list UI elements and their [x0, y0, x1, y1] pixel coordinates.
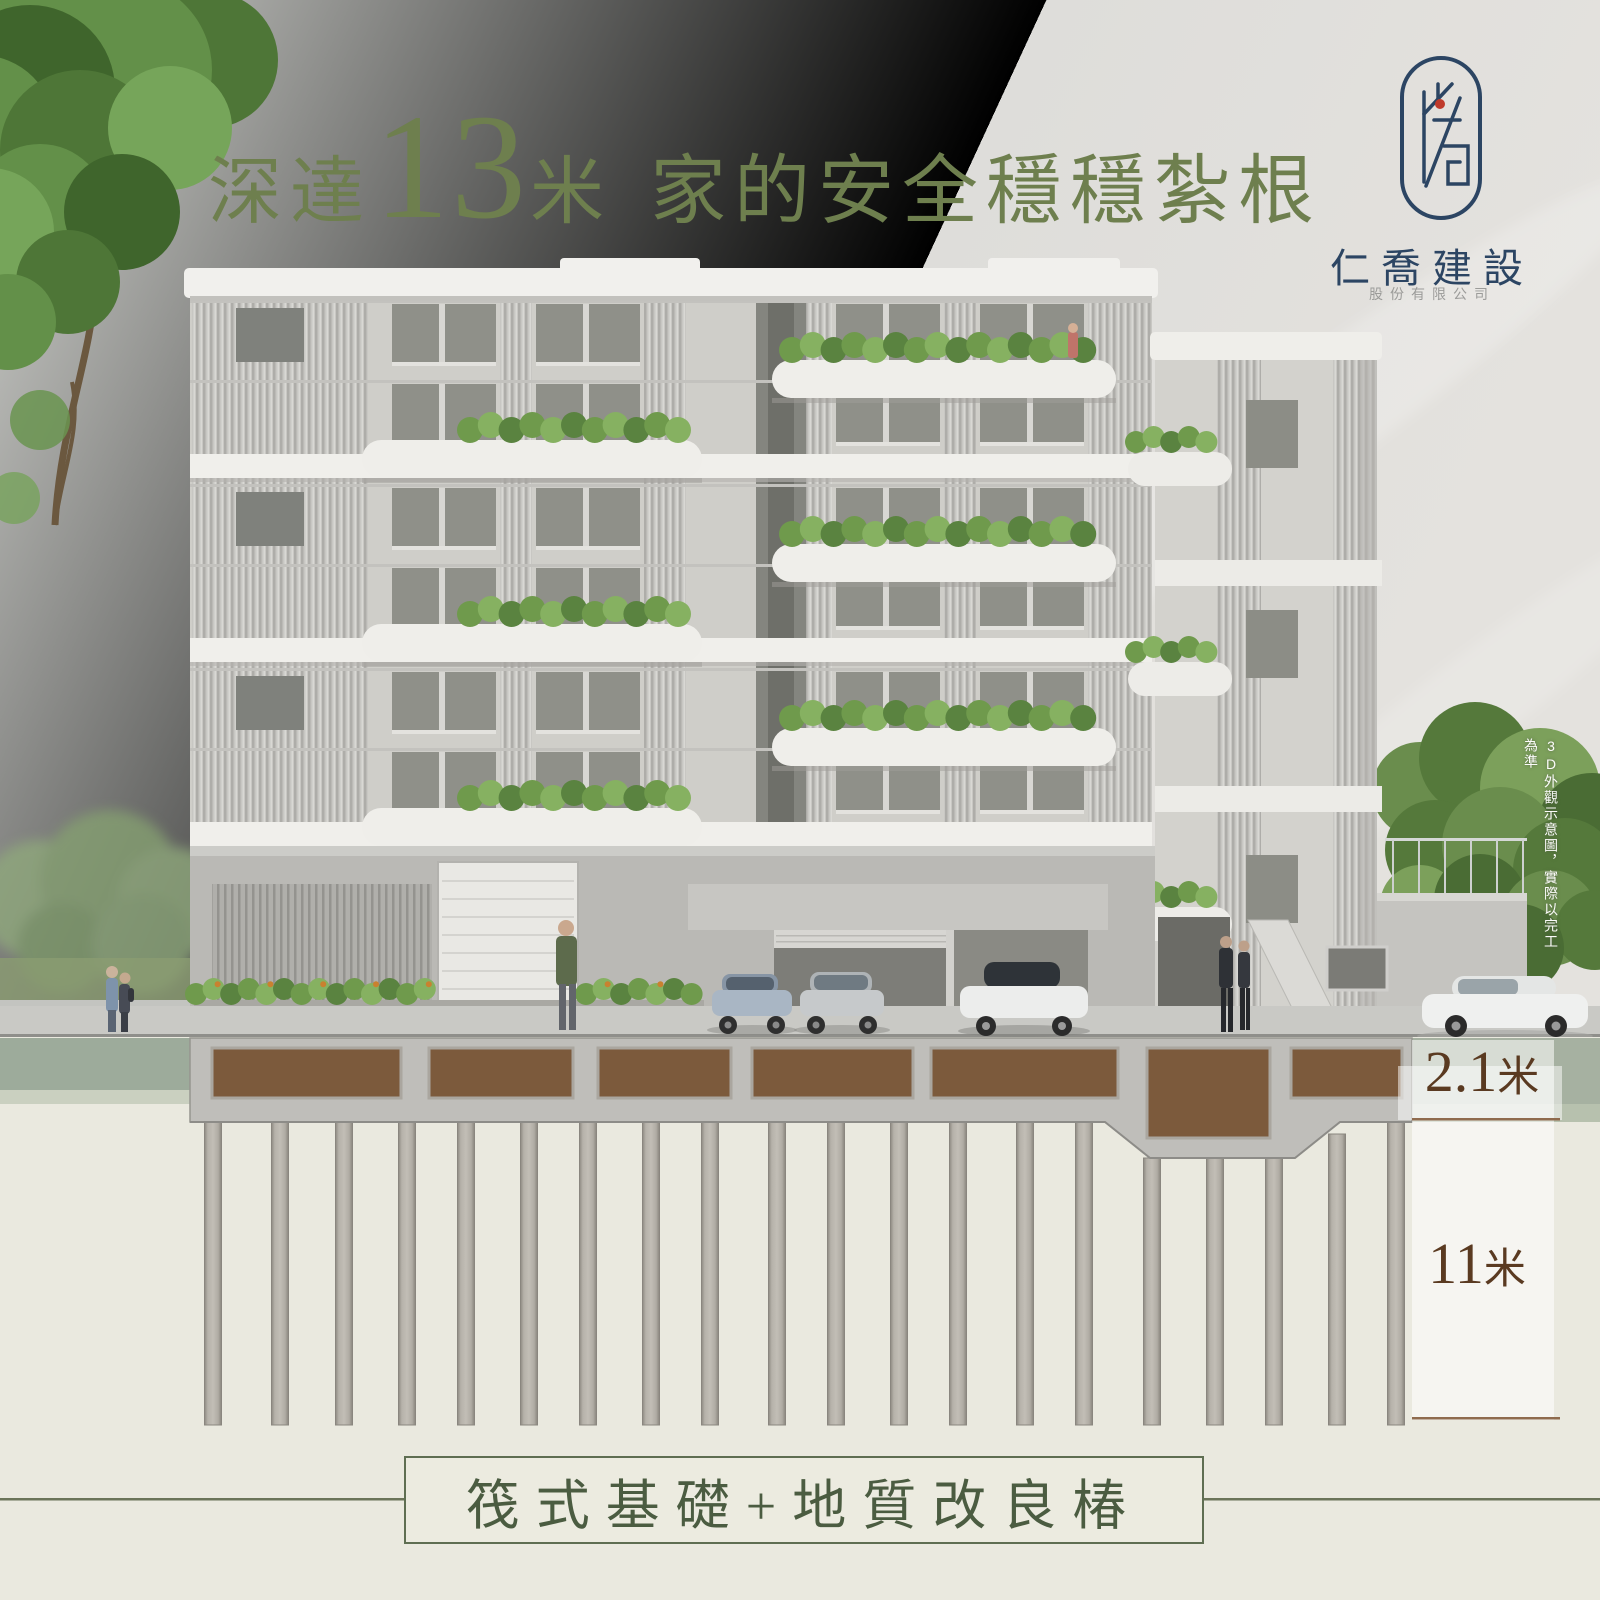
company-logo-mark [1396, 54, 1486, 222]
raft-depth-label: 2.1米 [1406, 1038, 1558, 1105]
car-blue [712, 990, 792, 1016]
car-silver [800, 990, 884, 1016]
company-subtitle: 股份有限公司 [1348, 284, 1516, 304]
sage-band-left [0, 1038, 190, 1090]
street-sidewalk [0, 1006, 1600, 1038]
wall-coping [1377, 893, 1527, 901]
foundation-caption-text: 筏式基礎+地質改良椿 [466, 1461, 1142, 1540]
car-white-garage [960, 986, 1088, 1018]
headline-title: 深達 13 米 家的安全穩穩紮根 [208, 92, 1322, 242]
guard-window [1327, 947, 1387, 990]
raft-depth-rule [1412, 1118, 1560, 1121]
render-disclaimer: 3D外觀示意圖，實際以完工為準 [1521, 738, 1561, 958]
headline-unit: 米 [530, 132, 612, 239]
annex-tower [1125, 332, 1382, 1008]
pile-depth-rule [1412, 1417, 1560, 1420]
poster-canvas: 深達 13 米 家的安全穩穩紮根 仁喬建設 股份有限公司 3D外觀示意圖，實際以… [0, 0, 1600, 1600]
pile-depth-label: 11米 [1406, 1230, 1548, 1297]
headline-prefix: 深達 [208, 132, 372, 239]
logo-red-dot [1435, 99, 1445, 109]
roller-door [438, 862, 578, 1008]
headline-number: 13 [374, 92, 528, 242]
foundation-caption: 筏式基礎+地質改良椿 [404, 1456, 1204, 1544]
headline-suffix: 家的安全穩穩紮根 [650, 129, 1322, 239]
